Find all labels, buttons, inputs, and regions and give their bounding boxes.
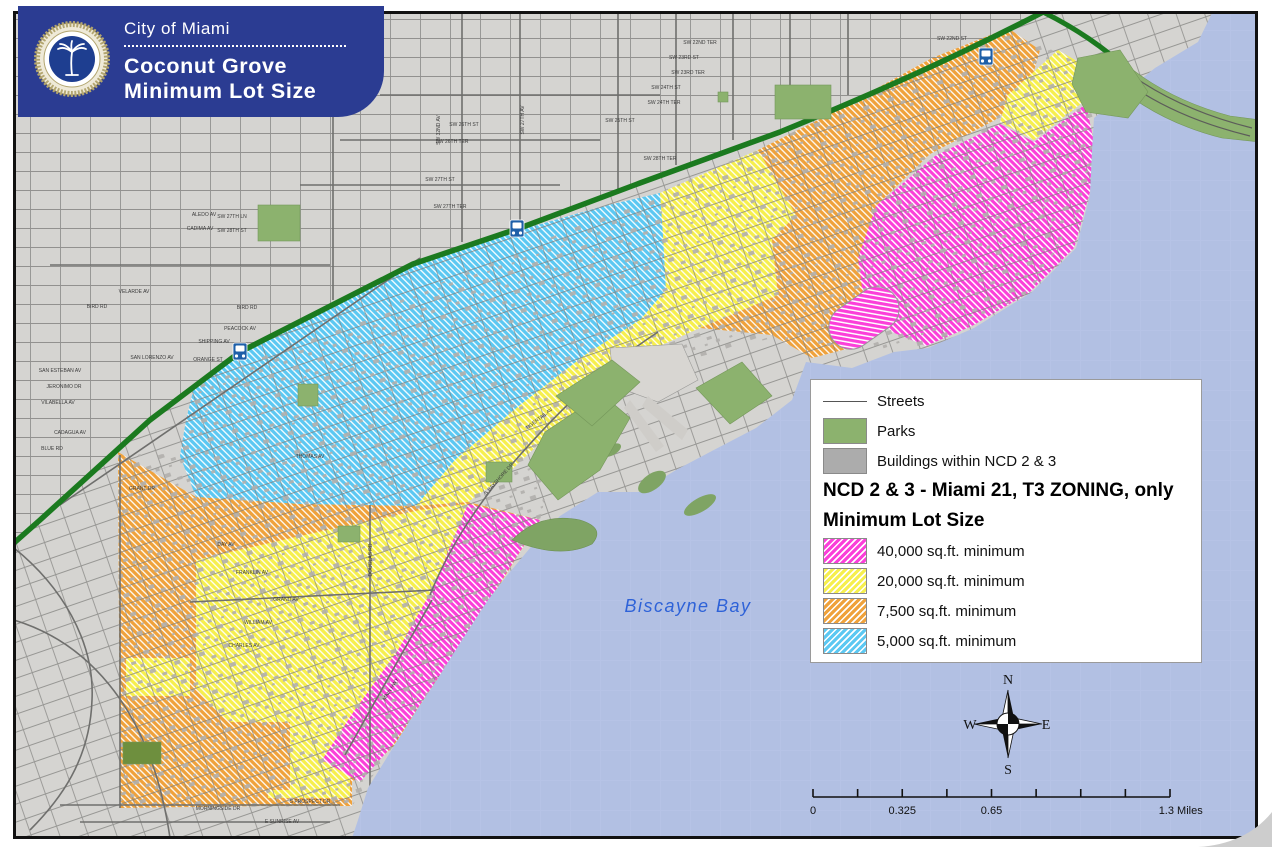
street-label: SW 28TH TER (644, 156, 677, 162)
legend-label: Streets (877, 393, 925, 410)
map-title-line2: Minimum Lot Size (124, 79, 346, 104)
street-label: SW 25TH ST (605, 118, 634, 124)
street-label: FRANKLIN AV (236, 570, 269, 576)
legend-item-parks: Parks (823, 416, 1201, 446)
legend-heading-minlot: Minimum Lot Size (823, 506, 1201, 536)
street-label: BIRD RD (237, 305, 258, 311)
water-label: Biscayne Bay (624, 596, 751, 616)
compass-s-label: S (1004, 763, 1012, 778)
metrorail-station-icon (233, 343, 247, 360)
street-label: ALEDO AV (192, 212, 217, 218)
legend-item-7500: 7,500 sq.ft. minimum (823, 596, 1201, 626)
street-label: SW 28TH ST (217, 228, 246, 234)
street-label: SW 27TH AV (520, 105, 526, 135)
street-label: SW 27TH LN (217, 214, 247, 220)
legend-label: Buildings within NCD 2 & 3 (877, 453, 1056, 470)
street-label: DOUGLAS RD (368, 543, 374, 576)
compass-w-label: W (963, 718, 977, 733)
metrorail-station-icon (510, 220, 524, 237)
street-label: VELARDE AV (119, 289, 150, 295)
street-label: SW 23RD TER (671, 70, 705, 76)
compass-e-label: E (1042, 718, 1051, 733)
legend-item-streets: Streets (823, 386, 1201, 416)
legend-item-40000: 40,000 sq.ft. minimum (823, 536, 1201, 566)
street-label: THOMAS AV (296, 454, 325, 460)
street-label: SW 26TH ST (449, 122, 478, 128)
street-label: BIRD RD (87, 304, 108, 310)
street-label: S PROSPECT DR (290, 799, 331, 805)
legend-item-20000: 20,000 sq.ft. minimum (823, 566, 1201, 596)
scale-label: 0.65 (981, 805, 1002, 817)
street-label: WILLIAM AV (244, 620, 273, 626)
street-label: SW 22ND TER (683, 40, 717, 46)
legend-label: 5,000 sq.ft. minimum (877, 633, 1016, 650)
scale-label: 0.325 (888, 805, 916, 817)
city-seal (34, 21, 110, 102)
title-card: City of Miami Coconut Grove Minimum Lot … (18, 6, 384, 117)
street-label: PEACOCK AV (224, 326, 257, 332)
street-label: GRAND AV (273, 597, 299, 603)
street-label: SW 27TH TER (434, 204, 467, 210)
street-label: SW 27TH ST (425, 177, 454, 183)
street-label: SHIPPING AV (198, 339, 230, 345)
street-label: SW 22ND ST (937, 36, 967, 42)
street-label: JERONIMO DR (47, 384, 82, 390)
legend-label: Parks (877, 423, 915, 440)
street-label: MORNINGSIDE DR (196, 806, 241, 812)
street-label: CADIMA AV (187, 226, 214, 232)
street-label: SAN ESTEBAN AV (39, 368, 82, 374)
scale-label: 0 (810, 805, 816, 817)
legend: Streets Parks Buildings within NCD 2 & 3… (810, 379, 1202, 663)
street-label: SW 23RD ST (669, 55, 699, 61)
legend-label: 20,000 sq.ft. minimum (877, 573, 1025, 590)
street-label: DAY AV (217, 542, 235, 548)
streets-line-symbol (823, 401, 867, 402)
street-label: CADAGUA AV (54, 430, 87, 436)
legend-label: 40,000 sq.ft. minimum (877, 543, 1025, 560)
zone-5000-swatch (823, 628, 867, 654)
street-label: SW 32ND AV (436, 115, 442, 145)
zone-20000-swatch (823, 568, 867, 594)
buildings-swatch (823, 448, 867, 474)
map-title-line1: Coconut Grove (124, 54, 346, 79)
street-label: E SUNRISE AV (265, 819, 300, 825)
street-label: ORANGE ST (193, 357, 222, 363)
street-label: GRANT DR (129, 486, 155, 492)
legend-item-5000: 5,000 sq.ft. minimum (823, 626, 1201, 656)
street-label: CHARLES AV (228, 643, 260, 649)
legend-label: 7,500 sq.ft. minimum (877, 603, 1016, 620)
title-divider (124, 44, 346, 47)
legend-item-buildings: Buildings within NCD 2 & 3 (823, 446, 1201, 476)
metrorail-station-icon (979, 48, 993, 65)
legend-heading-ncd: NCD 2 & 3 - Miami 21, T3 ZONING, only (823, 476, 1201, 506)
zone-40000-swatch (823, 538, 867, 564)
compass-n-label: N (1003, 673, 1013, 688)
street-label: BLUE RD (41, 446, 63, 452)
parks-swatch (823, 418, 867, 444)
street-label: SW 24TH ST (651, 85, 680, 91)
street-label: SW 24TH TER (648, 100, 681, 106)
street-label: SAN LORENZO AV (130, 355, 174, 361)
zone-7500-swatch (823, 598, 867, 624)
agency-name: City of Miami (124, 19, 346, 39)
scale-label: 1.3 Miles (1159, 805, 1204, 817)
map-document: SW 22ND STSW 22ND TERSW 23RD STSW 23RD T… (0, 0, 1272, 847)
street-label: VILABELLA AV (41, 400, 75, 406)
